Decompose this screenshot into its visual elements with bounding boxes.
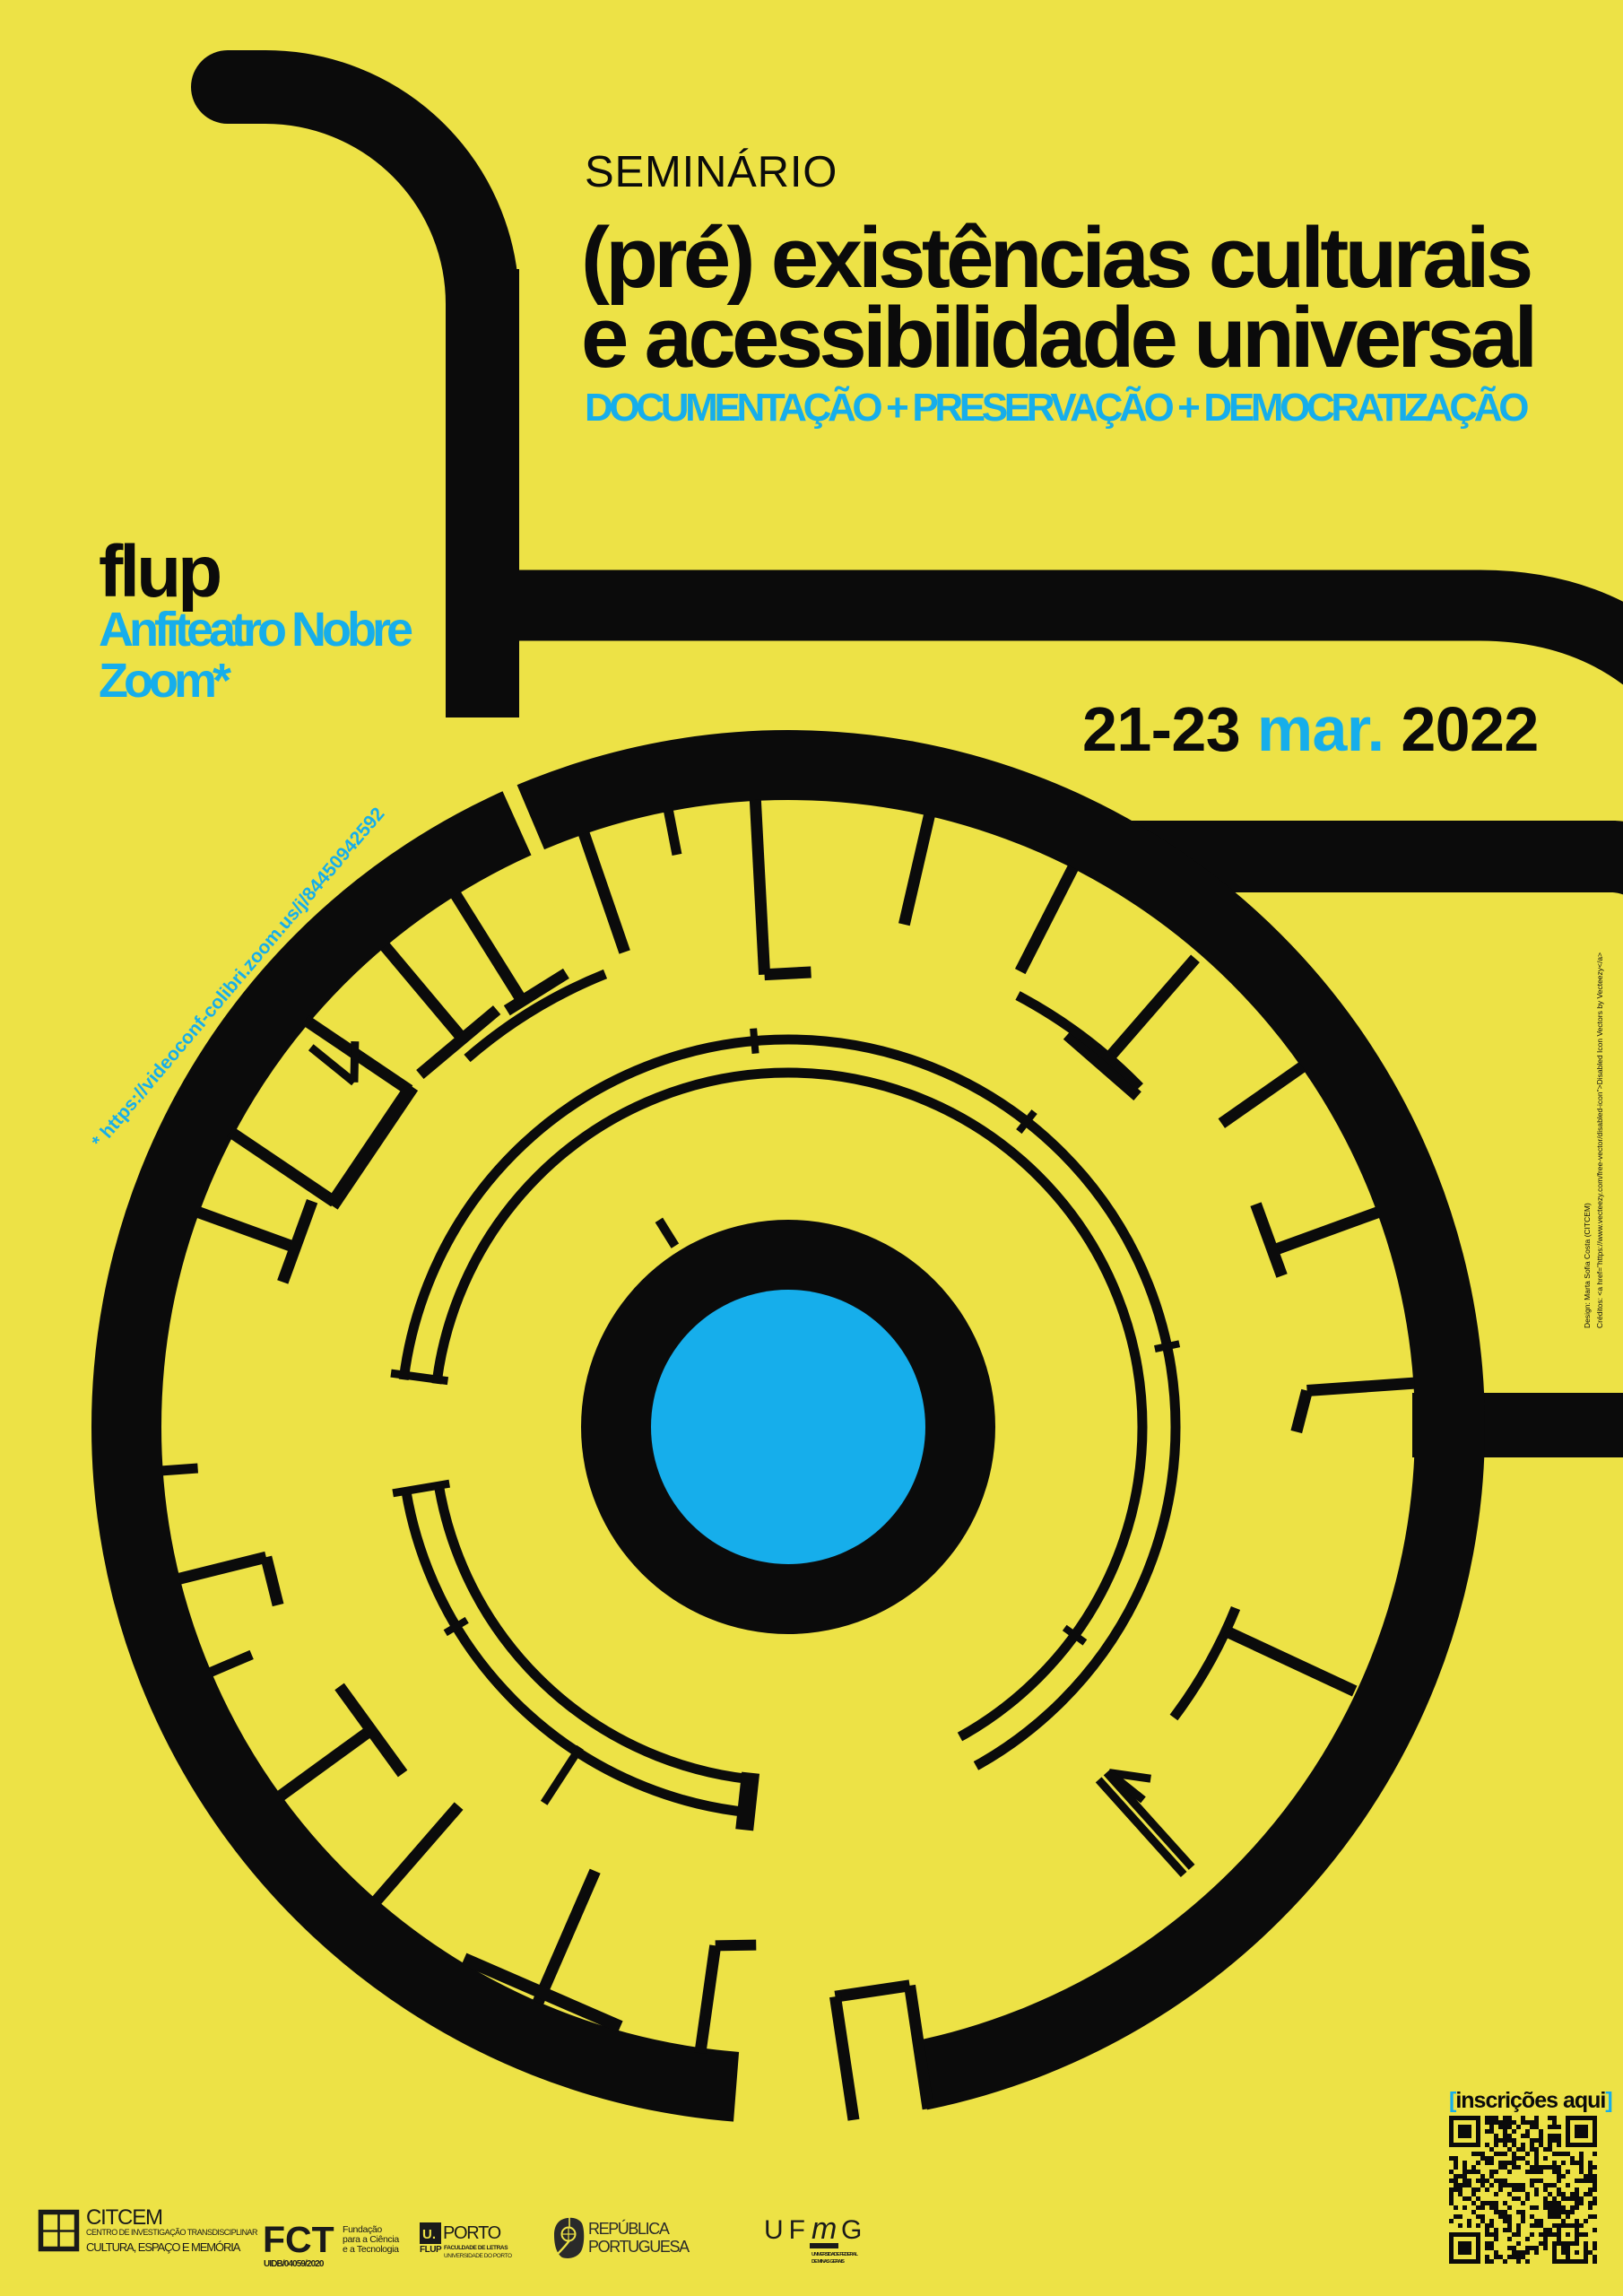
svg-text:CITCEM: CITCEM [86,2205,162,2230]
svg-text:REPÚBLICA: REPÚBLICA [588,2219,670,2238]
svg-text:flup: flup [99,531,220,613]
svg-text:21-23 mar. 2022: 21-23 mar. 2022 [1082,694,1539,764]
svg-text:FCT: FCT [263,2219,334,2260]
svg-text:UF: UF [764,2215,811,2245]
svg-text:Créditos: <a href="https://www: Créditos: <a href="https://www.vecteezy.… [1595,952,1604,1328]
svg-text:[inscrições aqui]: [inscrições aqui] [1449,2088,1612,2113]
svg-text:G: G [841,2215,862,2245]
svg-text:UNIVERSIDADE FEDERAL: UNIVERSIDADE FEDERAL [811,2252,859,2257]
svg-text:UNIVERSIDADE DO PORTO: UNIVERSIDADE DO PORTO [444,2253,512,2259]
svg-text:Zoom*: Zoom* [99,654,231,708]
svg-text:e a Tecnologia: e a Tecnologia [343,2244,399,2255]
svg-text:U.: U. [422,2227,436,2242]
svg-text:FACULDADE DE LETRAS: FACULDADE DE LETRAS [444,2245,508,2251]
svg-text:DE MINAS GERAIS: DE MINAS GERAIS [811,2259,845,2265]
svg-text:Anfiteatro Nobre: Anfiteatro Nobre [99,603,412,657]
svg-text:CENTRO DE INVESTIGAÇÃO TRANSDI: CENTRO DE INVESTIGAÇÃO TRANSDISCIPLINAR [86,2228,258,2237]
svg-text:PORTO: PORTO [443,2223,501,2243]
svg-text:FLUP: FLUP [420,2245,442,2255]
svg-text:CULTURA, ESPAÇO E MEMÓRIA: CULTURA, ESPAÇO E MEMÓRIA [86,2240,241,2254]
svg-text:Design: Marta Sofia Costa (CIT: Design: Marta Sofia Costa (CITCEM) [1583,1203,1592,1328]
svg-text:m: m [811,2212,837,2246]
svg-text:UIDB/04059/2020: UIDB/04059/2020 [264,2259,325,2269]
svg-text:SEMINÁRIO: SEMINÁRIO [585,148,838,196]
svg-text:DOCUMENTAÇÃO + PRESERVAÇÃO + D: DOCUMENTAÇÃO + PRESERVAÇÃO + DEMOCRATIZA… [585,385,1528,430]
svg-text:e acessibilidade universal: e acessibilidade universal [581,290,1533,386]
svg-text:PORTUGUESA: PORTUGUESA [588,2238,690,2256]
